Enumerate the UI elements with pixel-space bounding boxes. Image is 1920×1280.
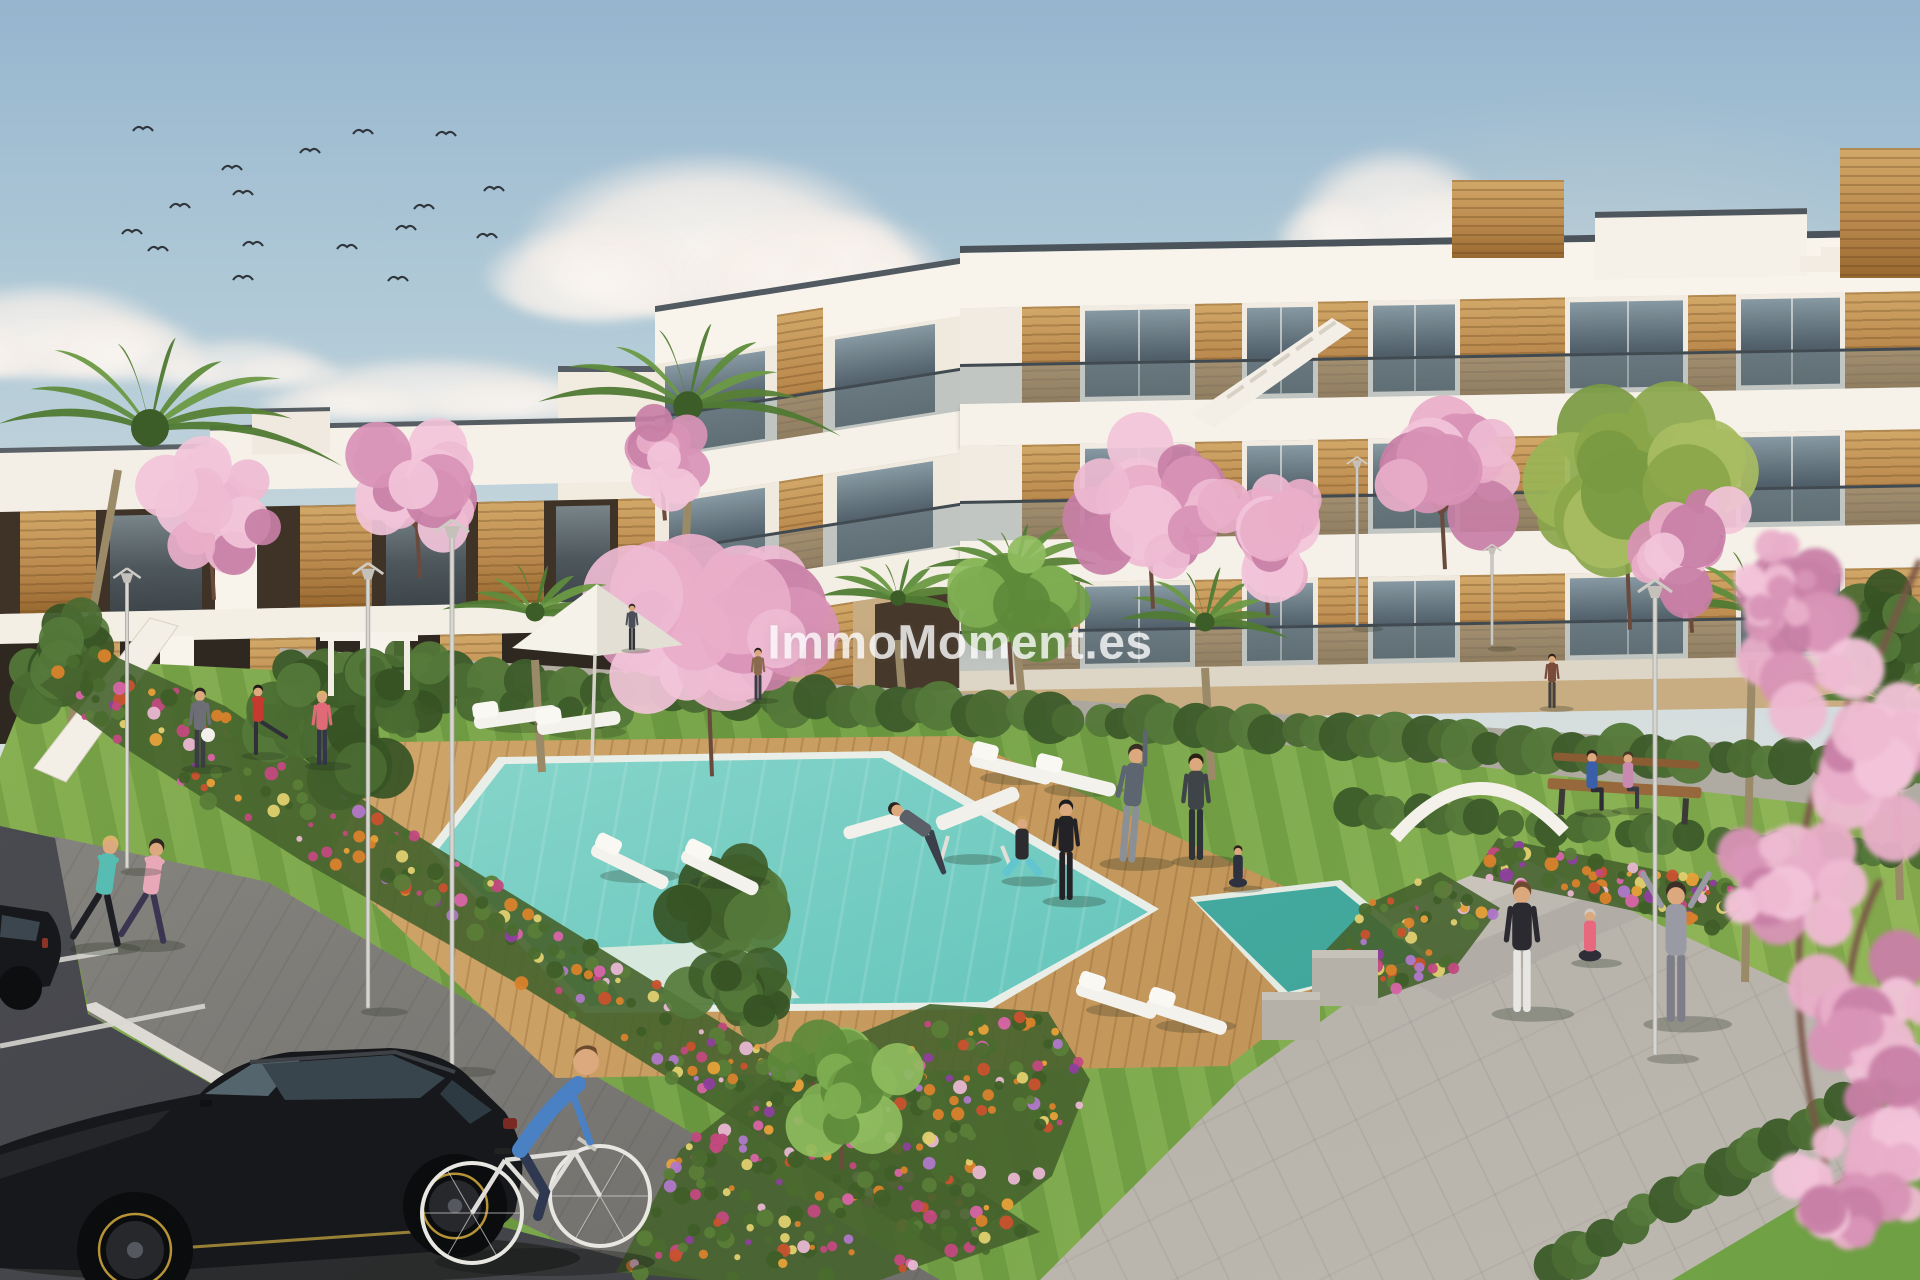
watermark: ImmoMoment.es bbox=[767, 616, 1152, 671]
foreground-blossom-branch bbox=[1717, 530, 1920, 1250]
architectural-render: ImmoMoment.es bbox=[0, 0, 1920, 1280]
